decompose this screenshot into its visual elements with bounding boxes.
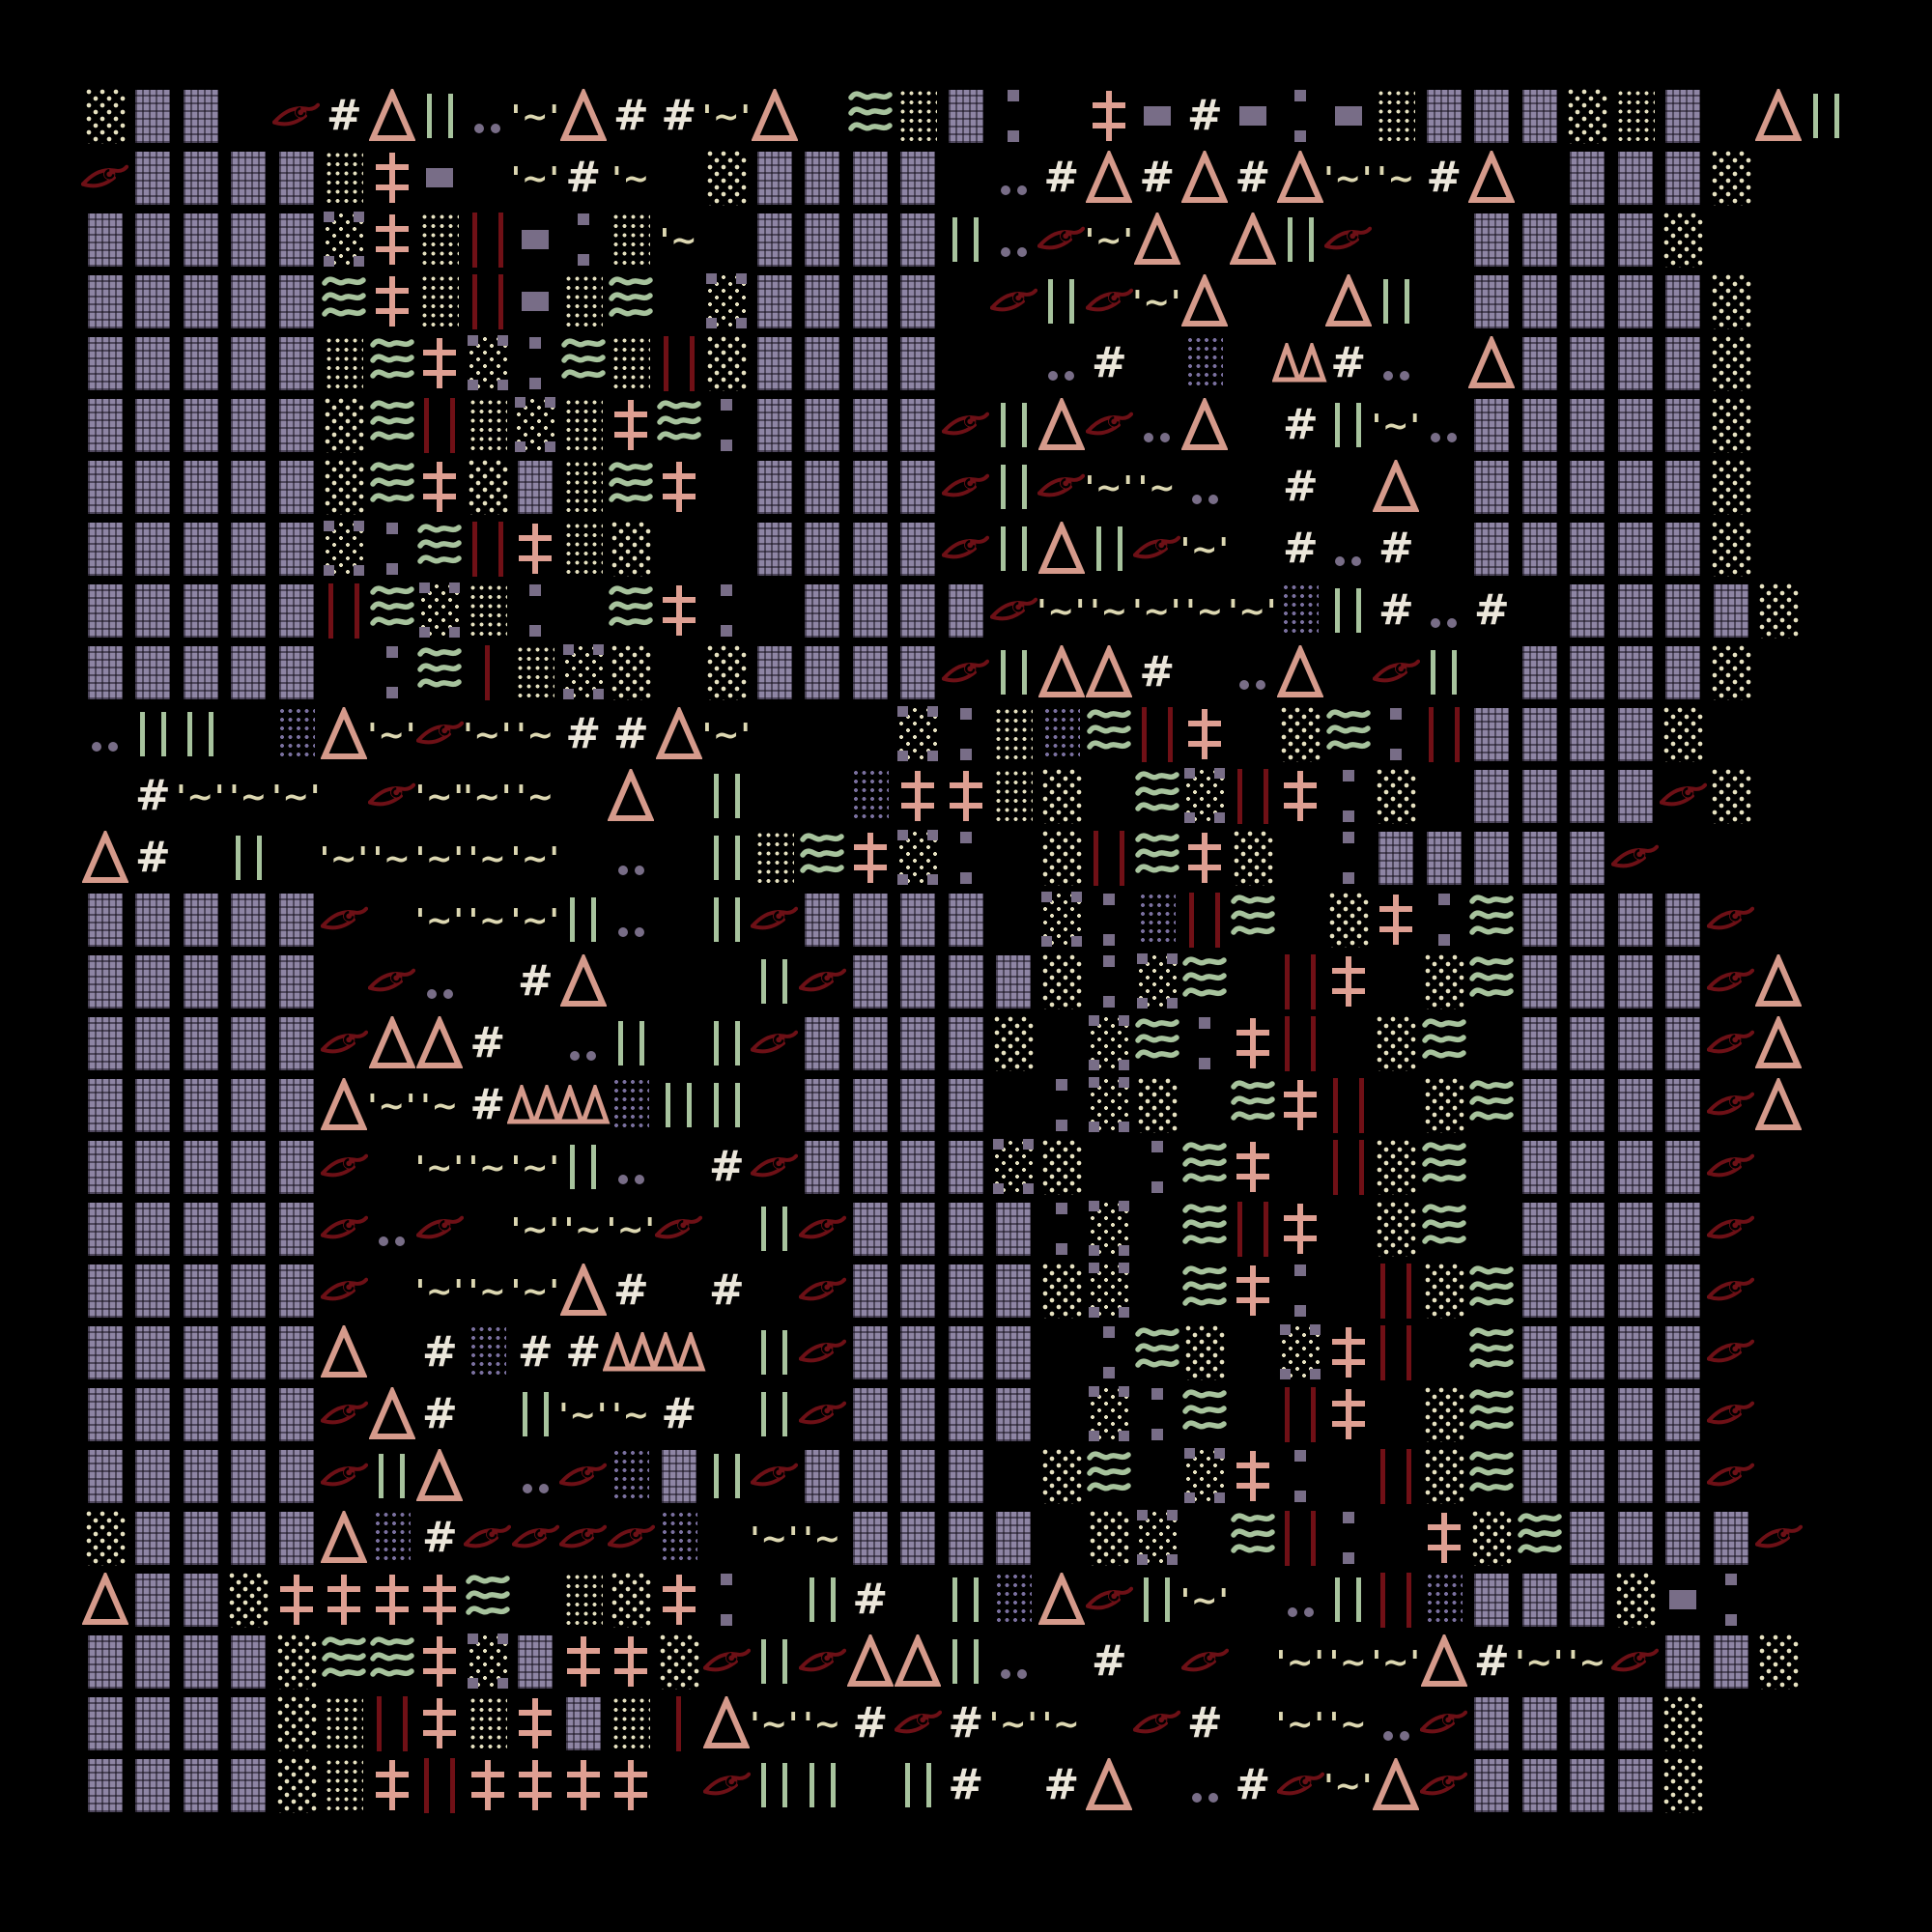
woven-block-tile [1611, 1136, 1660, 1198]
woven-block-tile [81, 1012, 129, 1074]
woven-block-tile [846, 456, 895, 518]
triple-wave-glyph [1181, 1260, 1230, 1321]
woven-block-tile [1564, 209, 1612, 270]
eye-glyph [559, 1507, 608, 1569]
woven-block-tile [177, 641, 225, 703]
woven-block-tile [1660, 1631, 1708, 1692]
woven-block-tile [895, 518, 943, 580]
woven-block-tile [1611, 765, 1660, 827]
woven-block-tile [895, 1383, 943, 1445]
woven-block-tile [272, 1136, 321, 1198]
woven-block-tile [177, 1012, 225, 1074]
woven-block-tile [225, 270, 273, 332]
double-bar-glyph [703, 1012, 752, 1074]
triangle-glyph [559, 951, 608, 1012]
double-dagger-glyph [368, 209, 416, 270]
corner-square [1280, 1324, 1291, 1335]
quote-tilde-glyph: '~' [177, 765, 225, 827]
woven-block-tile [1516, 951, 1564, 1012]
double-bar-glyph [1324, 394, 1373, 456]
woven-block-tile [81, 1754, 129, 1816]
woven-block-tile [177, 209, 225, 270]
double-dot-glyph [512, 1445, 560, 1507]
hash-glyph: # [129, 765, 178, 827]
double-dagger-glyph [1277, 1074, 1325, 1136]
double-dagger-glyph [1229, 1012, 1277, 1074]
woven-block-tile [1660, 1012, 1708, 1074]
sparse-dot-tile [1660, 209, 1708, 270]
woven-block-tile [895, 580, 943, 641]
purple-dot-grid-tile [655, 1507, 703, 1569]
woven-block-tile [177, 580, 225, 641]
triangle-glyph [1086, 147, 1134, 209]
double-bar-glyph [990, 518, 1038, 580]
woven-block-tile [1707, 580, 1755, 641]
double-bar-glyph [559, 1136, 608, 1198]
woven-block-tile [177, 332, 225, 394]
hash-glyph: # [559, 147, 608, 209]
triple-wave-glyph [1468, 1445, 1517, 1507]
eye-glyph [990, 270, 1038, 332]
triple-wave-glyph [799, 827, 847, 889]
woven-block-tile [272, 1260, 321, 1321]
eye-glyph [608, 1507, 656, 1569]
double-bar-glyph [129, 703, 178, 765]
woven-block-tile [177, 951, 225, 1012]
woven-block-tile [1611, 1012, 1660, 1074]
quote-tilde-glyph: '~' [512, 1198, 560, 1260]
woven-block-tile [1660, 641, 1708, 703]
double-red-bar-glyph [1373, 1569, 1421, 1631]
hash-glyph: # [703, 1136, 752, 1198]
woven-block-tile [1564, 765, 1612, 827]
corner-square [468, 1634, 478, 1644]
corner-squares-tile [464, 1631, 512, 1692]
woven-block-tile [1564, 456, 1612, 518]
double-square-tile [1324, 827, 1373, 889]
double-bar-glyph [799, 1754, 847, 1816]
woven-block-tile [1516, 1321, 1564, 1383]
triple-wave-glyph [1324, 703, 1373, 765]
woven-block-tile [225, 1445, 273, 1507]
double-dot-glyph [1277, 1569, 1325, 1631]
triangle-glyph [1086, 641, 1134, 703]
double-bar-glyph [1373, 270, 1421, 332]
cream-dot-grid-tile [559, 270, 608, 332]
woven-block-tile [846, 951, 895, 1012]
woven-block-tile [846, 1012, 895, 1074]
woven-block-tile [1516, 1754, 1564, 1816]
double-bar-glyph [655, 1074, 703, 1136]
woven-block-tile [942, 1012, 990, 1074]
woven-block-tile [799, 641, 847, 703]
woven-block-tile [1660, 1198, 1708, 1260]
woven-block-tile [799, 1012, 847, 1074]
sparse-dot-tile [1037, 1136, 1086, 1198]
woven-block-tile [799, 147, 847, 209]
woven-block-tile [942, 1445, 990, 1507]
dash-tile [1229, 85, 1277, 147]
double-dagger-glyph [1324, 951, 1373, 1012]
double-dot-glyph [368, 1198, 416, 1260]
woven-block-tile [272, 209, 321, 270]
hash-glyph: # [846, 1569, 895, 1631]
triple-wave-glyph [1229, 1074, 1277, 1136]
woven-block-tile [1516, 1692, 1564, 1754]
eye-glyph [1611, 827, 1660, 889]
double-dot-glyph [416, 951, 465, 1012]
eye-glyph [321, 1445, 369, 1507]
woven-block-tile [895, 1012, 943, 1074]
woven-block-tile [81, 394, 129, 456]
woven-block-tile [846, 580, 895, 641]
triangle-glyph [368, 85, 416, 147]
triangle-glyph [1037, 518, 1086, 580]
corner-square [1184, 1448, 1195, 1459]
woven-block-tile [1564, 1198, 1612, 1260]
woven-block-tile [1611, 518, 1660, 580]
double-square-tile [1086, 951, 1134, 1012]
triangle-glyph [368, 1012, 416, 1074]
eye-glyph [1707, 1445, 1755, 1507]
sparse-dot-tile [225, 1569, 273, 1631]
sparse-dot-tile [1086, 1507, 1134, 1569]
woven-block-tile [990, 1507, 1038, 1569]
double-red-bar-glyph [1229, 1198, 1277, 1260]
eye-glyph [1707, 1321, 1755, 1383]
eye-glyph [321, 1198, 369, 1260]
quote-tilde-glyph: '~' [416, 765, 465, 827]
woven-block-tile [272, 1507, 321, 1569]
woven-block-tile [1660, 1136, 1708, 1198]
corner-square [897, 706, 908, 717]
double-dagger-glyph [416, 456, 465, 518]
woven-block-tile [1707, 1507, 1755, 1569]
woven-block-tile [1468, 270, 1517, 332]
woven-block-tile [1660, 518, 1708, 580]
woven-block-tile [1516, 827, 1564, 889]
double-square-tile [942, 827, 990, 889]
woven-block-tile [1660, 85, 1708, 147]
double-dagger-glyph [416, 1692, 465, 1754]
woven-block-tile [177, 270, 225, 332]
triple-wave-glyph [1133, 1321, 1181, 1383]
triangle-glyph [1181, 270, 1230, 332]
sparse-dot-tile [1564, 85, 1612, 147]
woven-block-tile [129, 1754, 178, 1816]
eye-glyph [1755, 1507, 1804, 1569]
woven-block-tile [225, 889, 273, 951]
woven-block-tile [177, 1136, 225, 1198]
woven-block-tile [177, 1383, 225, 1445]
woven-block-tile [1468, 518, 1517, 580]
triple-wave-glyph [1181, 1198, 1230, 1260]
woven-block-tile [272, 147, 321, 209]
woven-block-tile [990, 1198, 1038, 1260]
double-dot-glyph [990, 1631, 1038, 1692]
quote-tilde-glyph: '~' [1277, 1692, 1325, 1754]
hash-glyph: # [1277, 518, 1325, 580]
double-bar-glyph [512, 1383, 560, 1445]
double-bar-glyph [608, 1012, 656, 1074]
double-dagger-glyph [608, 1631, 656, 1692]
eye-glyph [799, 1198, 847, 1260]
double-dot-glyph [1373, 332, 1421, 394]
sparse-dot-tile [272, 1631, 321, 1692]
corner-square [706, 273, 717, 284]
eye-glyph [1181, 1631, 1230, 1692]
woven-block-tile [751, 641, 799, 703]
woven-block-tile [1468, 1569, 1517, 1631]
cream-dot-grid-tile [464, 1692, 512, 1754]
woven-block-tile [1660, 1321, 1708, 1383]
woven-block-tile [129, 889, 178, 951]
eye-glyph [1707, 1136, 1755, 1198]
corner-squares-tile [559, 641, 608, 703]
woven-block-tile [1516, 641, 1564, 703]
eye-glyph [990, 580, 1038, 641]
woven-block-tile [942, 1136, 990, 1198]
double-triangle-glyph [608, 1321, 656, 1383]
corner-square [1137, 953, 1148, 964]
corner-squares-tile [1086, 1198, 1134, 1260]
double-dot-glyph [1229, 641, 1277, 703]
quote-tilde-glyph: '~' [416, 1260, 465, 1321]
triple-wave-glyph [1086, 1445, 1134, 1507]
woven-block-tile [81, 209, 129, 270]
sparse-dot-tile [464, 456, 512, 518]
hash-glyph: # [1037, 147, 1086, 209]
woven-block-tile [895, 147, 943, 209]
double-square-tile [1133, 1136, 1181, 1198]
woven-block-tile [177, 1754, 225, 1816]
woven-block-tile [846, 641, 895, 703]
woven-block-tile [942, 580, 990, 641]
woven-block-tile [1611, 1383, 1660, 1445]
quote-tilde-glyph: '~' [1133, 580, 1181, 641]
woven-block-tile [990, 1260, 1038, 1321]
woven-block-tile [895, 1445, 943, 1507]
woven-block-tile [129, 1260, 178, 1321]
sparse-dot-tile [1037, 1445, 1086, 1507]
triple-wave-glyph [416, 641, 465, 703]
woven-block-tile [177, 85, 225, 147]
sparse-dot-tile [1324, 889, 1373, 951]
cream-dot-grid-tile [608, 332, 656, 394]
woven-block-tile [272, 1321, 321, 1383]
triple-wave-glyph [1516, 1507, 1564, 1569]
triple-wave-glyph [368, 580, 416, 641]
double-square-tile [512, 580, 560, 641]
double-square-tile [1324, 765, 1373, 827]
woven-block-tile [81, 889, 129, 951]
triangle-glyph [321, 703, 369, 765]
double-dot-glyph [1037, 332, 1086, 394]
corner-squares-tile [1181, 1445, 1230, 1507]
tilde-quote-glyph: '~ [655, 209, 703, 270]
tilde-quote-glyph: '~ [464, 1136, 512, 1198]
woven-block-tile [225, 1383, 273, 1445]
woven-block-tile [1611, 147, 1660, 209]
sparse-dot-tile [1277, 703, 1325, 765]
triangle-glyph [1755, 85, 1804, 147]
corner-square [897, 830, 908, 840]
woven-block-tile [129, 580, 178, 641]
woven-block-tile [129, 641, 178, 703]
hash-glyph: # [1181, 1692, 1230, 1754]
quote-tilde-glyph: '~' [464, 765, 512, 827]
double-dagger-glyph [512, 518, 560, 580]
woven-block-tile [1516, 332, 1564, 394]
triple-wave-glyph [1468, 889, 1517, 951]
woven-block-tile [1611, 1692, 1660, 1754]
quote-tilde-glyph: '~' [1181, 518, 1230, 580]
double-triangle-glyph [512, 1074, 560, 1136]
woven-block-tile [751, 209, 799, 270]
woven-block-tile [942, 1321, 990, 1383]
hash-glyph: # [1037, 1754, 1086, 1816]
hash-glyph: # [464, 1074, 512, 1136]
triple-wave-glyph [1181, 1383, 1230, 1445]
hash-glyph: # [608, 1260, 656, 1321]
double-square-tile [1277, 1260, 1325, 1321]
double-dot-glyph [608, 1136, 656, 1198]
woven-block-tile [1468, 703, 1517, 765]
woven-block-tile [799, 456, 847, 518]
woven-block-tile [846, 209, 895, 270]
double-square-tile [1086, 1321, 1134, 1383]
corner-squares-tile [1037, 889, 1086, 951]
sparse-dot-tile [1420, 1383, 1468, 1445]
woven-block-tile [272, 518, 321, 580]
purple-dot-grid-tile [608, 1074, 656, 1136]
double-square-tile [1086, 889, 1134, 951]
double-red-bar-glyph [321, 580, 369, 641]
woven-block-tile [177, 1321, 225, 1383]
double-dot-glyph [1181, 456, 1230, 518]
woven-block-tile [1564, 518, 1612, 580]
woven-block-tile [751, 270, 799, 332]
triple-wave-glyph [368, 332, 416, 394]
woven-block-tile [177, 1692, 225, 1754]
triple-wave-glyph [321, 270, 369, 332]
sparse-dot-tile [1707, 147, 1755, 209]
double-square-tile [1420, 889, 1468, 951]
corner-squares-tile [464, 332, 512, 394]
woven-block-tile [272, 1074, 321, 1136]
woven-block-tile [1660, 889, 1708, 951]
woven-block-tile [1516, 703, 1564, 765]
eye-glyph [751, 889, 799, 951]
woven-block-tile [129, 1321, 178, 1383]
quote-tilde-glyph: '~' [703, 85, 752, 147]
woven-block-tile [799, 209, 847, 270]
woven-block-tile [1611, 1074, 1660, 1136]
woven-block-tile [81, 270, 129, 332]
woven-block-tile [81, 1074, 129, 1136]
tilde-quote-glyph: '~ [368, 827, 416, 889]
woven-block-tile [81, 1136, 129, 1198]
woven-block-tile [177, 1569, 225, 1631]
woven-block-tile [799, 1074, 847, 1136]
woven-block-tile [655, 1445, 703, 1507]
eye-glyph [321, 1260, 369, 1321]
triangle-glyph [321, 1507, 369, 1569]
woven-block-tile [846, 1136, 895, 1198]
corner-square [1089, 1386, 1099, 1397]
quote-tilde-glyph: '~' [1373, 394, 1421, 456]
cream-dot-grid-tile [559, 1569, 608, 1631]
quote-tilde-glyph: '~' [464, 703, 512, 765]
double-dot-glyph [990, 209, 1038, 270]
woven-block-tile [272, 1445, 321, 1507]
dash-tile [1324, 85, 1373, 147]
woven-block-tile [1516, 1198, 1564, 1260]
hash-glyph: # [1420, 147, 1468, 209]
triple-wave-glyph [1229, 1507, 1277, 1569]
dash-tile [512, 209, 560, 270]
double-bar-glyph [990, 641, 1038, 703]
double-bar-glyph [1803, 85, 1851, 147]
corner-square [1089, 1201, 1099, 1211]
eye-glyph [1707, 951, 1755, 1012]
eye-glyph [512, 1507, 560, 1569]
woven-block-tile [1468, 827, 1517, 889]
woven-block-tile [895, 889, 943, 951]
cream-dot-grid-tile [751, 827, 799, 889]
woven-block-tile [1611, 456, 1660, 518]
woven-block-tile [1564, 1445, 1612, 1507]
woven-block-tile [1611, 951, 1660, 1012]
woven-block-tile [225, 951, 273, 1012]
woven-block-tile [129, 394, 178, 456]
sparse-dot-tile [1037, 1260, 1086, 1321]
cream-dot-grid-tile [416, 270, 465, 332]
quote-tilde-glyph: '~' [416, 889, 465, 951]
sparse-dot-tile [1229, 827, 1277, 889]
double-red-bar-glyph [1277, 951, 1325, 1012]
woven-block-tile [990, 1383, 1038, 1445]
woven-block-tile [1660, 270, 1708, 332]
woven-block-tile [272, 456, 321, 518]
double-bar-glyph [1037, 270, 1086, 332]
double-red-bar-glyph [1277, 1507, 1325, 1569]
triple-wave-glyph [608, 580, 656, 641]
double-dagger-glyph [368, 1754, 416, 1816]
eye-glyph [1277, 1754, 1325, 1816]
cream-dot-grid-tile [321, 332, 369, 394]
purple-dot-grid-tile [1277, 580, 1325, 641]
double-red-bar-glyph [1277, 1383, 1325, 1445]
woven-block-tile [225, 1136, 273, 1198]
hash-glyph: # [846, 1692, 895, 1754]
woven-block-tile [81, 518, 129, 580]
woven-block-tile [895, 1136, 943, 1198]
quote-tilde-glyph: '~' [559, 1383, 608, 1445]
eye-glyph [1707, 1012, 1755, 1074]
woven-block-tile [1564, 889, 1612, 951]
triple-wave-glyph [1468, 951, 1517, 1012]
cream-dot-grid-tile [464, 580, 512, 641]
woven-block-tile [799, 580, 847, 641]
woven-block-tile [1516, 85, 1564, 147]
woven-block-tile [1516, 1260, 1564, 1321]
eye-glyph [799, 951, 847, 1012]
double-bar-glyph [799, 1569, 847, 1631]
woven-block-tile [177, 1260, 225, 1321]
double-dot-glyph [1133, 394, 1181, 456]
woven-block-tile [1468, 85, 1517, 147]
